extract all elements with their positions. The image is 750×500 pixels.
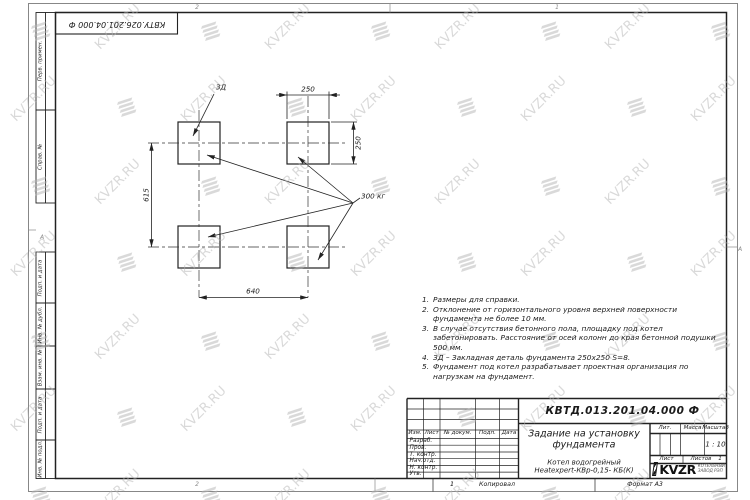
note-number: 3.: [419, 324, 433, 353]
zone-right: А: [738, 247, 742, 253]
note-item: 1. Размеры для справки.: [419, 295, 718, 305]
note-text: Фундамент под котел разрабатывает проект…: [433, 362, 718, 381]
dim-top-250: 250: [301, 85, 315, 92]
drawing-sheet: KVZR.RU KVZR.RU КВТУ.026.201.04.000 Ф 2 …: [0, 0, 750, 500]
zone-ticks: [29, 4, 738, 492]
tb-header-list: Лист: [425, 431, 439, 437]
kvzr-logo-icon: [652, 462, 658, 476]
leader-zd: [193, 94, 214, 136]
margin-field-vzam-inv: Взам. инв. №: [38, 349, 43, 386]
note-item: 4. ЗД – Закладная деталь фундамента 250х…: [419, 353, 718, 363]
footer-format: Формат А3: [627, 482, 663, 488]
label-load-300kg: 300 кг: [361, 192, 385, 199]
note-number: 4.: [419, 353, 433, 363]
product-name-line1: Котел водогрейный: [534, 458, 633, 467]
kvzr-logo-sub2: ЗАВОД РЭП: [698, 469, 725, 474]
tb-scale-label: Масштаб: [702, 426, 729, 432]
tb-header-izm: Изм.: [408, 431, 421, 437]
tb-mass-label: Масса: [684, 426, 702, 432]
footer-copied: Копировал: [479, 482, 515, 488]
notes-block: 1. Размеры для справки. 2. Отклонение от…: [419, 295, 718, 381]
margin-field-perv-primen: Перв. примен.: [38, 41, 43, 81]
kvzr-logo-subtitle: КОТЕЛЬНЫЙ ЗАВОД РЭП: [698, 464, 725, 474]
leaders: [193, 94, 360, 260]
footer-zone: 1: [450, 482, 454, 488]
margin-field-sprav-no: Справ. №: [38, 143, 43, 169]
note-text: В случае отсутствия бетонного пола, площ…: [433, 324, 718, 353]
top-stamp-doc-number: КВТУ.026.201.04.000 Ф: [68, 20, 165, 28]
tb-header-sign: Подп.: [479, 431, 496, 437]
drawing-title-line2: фундамента: [528, 440, 640, 451]
note-text: Размеры для справки.: [433, 295, 718, 305]
dim-bottom-640: 640: [246, 287, 260, 294]
margin-field-podp-data-1: Подп. и дата: [38, 259, 43, 296]
note-item: 2. Отклонение от горизонтального уровня …: [419, 305, 718, 324]
tb-lit-label: Лит.: [659, 426, 672, 432]
tb-header-doc: № докум.: [444, 431, 472, 437]
tb-row-utv: Утв.: [410, 472, 422, 478]
tb-header-date: Дата: [502, 431, 516, 437]
doc-number: КВТД.013.201.04.000 Ф: [546, 406, 700, 417]
zone-top-right: 1: [555, 5, 559, 11]
note-text: ЗД – Закладная деталь фундамента 250х250…: [433, 353, 718, 363]
company-logo: KVZR КОТЕЛЬНЫЙ ЗАВОД РЭП: [653, 461, 725, 477]
drawing-title-line1: Задание на установку: [528, 430, 640, 441]
margin-field-inv-podl: Инв. № подл.: [38, 440, 43, 477]
label-zd: ЗД: [216, 83, 226, 90]
product-name-line2: Heatexpert-КВр-0,15- КБ(К): [534, 467, 633, 476]
note-number: 1.: [419, 295, 433, 305]
dim-left-615: 615: [142, 188, 149, 202]
outer-border: [29, 4, 738, 492]
note-item: 3. В случае отсутствия бетонного пола, п…: [419, 324, 718, 353]
margin-field-inv-dubl: Инв. № дубл.: [38, 306, 43, 343]
tb-scale-value: 1 : 10: [705, 441, 725, 448]
sheet-linework: [0, 0, 750, 500]
zone-bottom-left: 2: [195, 482, 199, 488]
dim-right-250: 250: [354, 136, 361, 150]
note-number: 2.: [419, 305, 433, 324]
note-text: Отклонение от горизонтального уровня вер…: [433, 305, 718, 324]
note-number: 5.: [419, 362, 433, 381]
zone-top-left: 2: [195, 5, 199, 11]
foundation-pads: [178, 122, 329, 268]
margin-field-podp-data-2: Подп. и дата: [38, 396, 43, 433]
note-item: 5. Фундамент под котел разрабатывает про…: [419, 362, 718, 381]
zone-left: А: [40, 235, 44, 241]
kvzr-logo-name: KVZR: [659, 462, 695, 477]
